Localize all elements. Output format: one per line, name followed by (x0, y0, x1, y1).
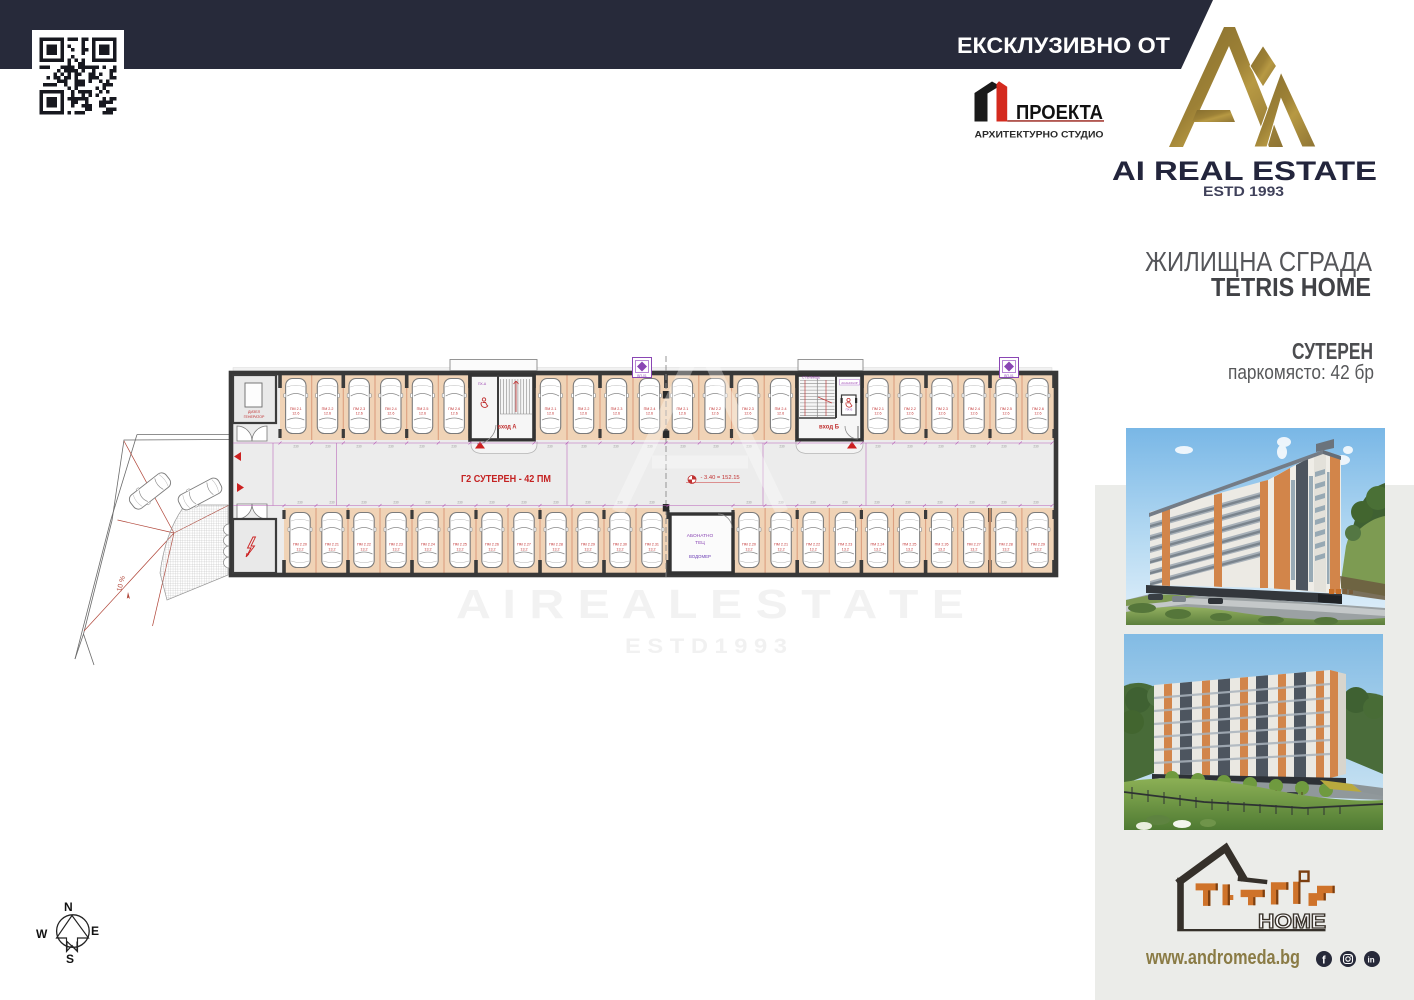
svg-text:ТЕЦ: ТЕЦ (695, 540, 705, 546)
svg-text:W: W (36, 927, 48, 941)
svg-text:230: 230 (1033, 445, 1039, 449)
svg-text:13.2: 13.2 (810, 547, 817, 551)
svg-text:13.2: 13.2 (745, 547, 752, 551)
svg-text:ПМ 2.26: ПМ 2.26 (935, 543, 949, 547)
svg-text:230: 230 (585, 500, 591, 504)
svg-text:230: 230 (425, 500, 431, 504)
svg-text:12.6: 12.6 (451, 412, 458, 416)
svg-text:ПМ 2.22: ПМ 2.22 (357, 543, 371, 547)
svg-text:230: 230 (489, 500, 495, 504)
svg-text:230: 230 (457, 500, 463, 504)
svg-text:13.2: 13.2 (552, 547, 559, 551)
svg-text:230: 230 (547, 445, 553, 449)
svg-text:ПМ 2.2: ПМ 2.2 (322, 407, 334, 411)
svg-text:ПМ 2.2: ПМ 2.2 (709, 407, 721, 411)
svg-text:230: 230 (581, 445, 587, 449)
svg-text:ПМ 2.6: ПМ 2.6 (448, 407, 460, 411)
svg-text:13.2: 13.2 (874, 547, 881, 551)
svg-text:13.2: 13.2 (938, 547, 945, 551)
svg-text:12.6: 12.6 (938, 412, 945, 416)
svg-text:230: 230 (451, 445, 457, 449)
svg-text:ВОДОМЕР: ВОДОМЕР (689, 554, 711, 559)
svg-text:230: 230 (361, 500, 367, 504)
svg-text:230: 230 (521, 500, 527, 504)
svg-text:вход Б: вход Б (819, 425, 840, 431)
svg-text:13.2: 13.2 (488, 547, 495, 551)
svg-text:13.2: 13.2 (392, 547, 399, 551)
svg-text:230: 230 (356, 445, 362, 449)
svg-text:ПМ 2.21: ПМ 2.21 (325, 543, 339, 547)
svg-text:ПМ 2.20: ПМ 2.20 (293, 543, 307, 547)
svg-text:S: S (66, 952, 74, 966)
svg-text:ПМ 2.29: ПМ 2.29 (581, 543, 595, 547)
svg-text:230: 230 (842, 500, 848, 504)
svg-text:13.2: 13.2 (648, 547, 655, 551)
svg-text:12.6: 12.6 (356, 412, 363, 416)
svg-text:ПМ 2.4: ПМ 2.4 (385, 407, 397, 411)
svg-text:230: 230 (297, 500, 303, 504)
svg-text:ПХ-А: ПХ-А (478, 382, 487, 386)
svg-text:13.2: 13.2 (328, 547, 335, 551)
svg-text:12.6: 12.6 (874, 412, 881, 416)
svg-text:ПМ 2.23: ПМ 2.23 (389, 543, 403, 547)
svg-text:13.2: 13.2 (906, 547, 913, 551)
svg-text:230: 230 (875, 445, 881, 449)
svg-text:230: 230 (680, 445, 686, 449)
svg-text:ВП-01: ВП-01 (1004, 374, 1014, 378)
svg-text:230: 230 (937, 500, 943, 504)
svg-text:ПМ 2.5: ПМ 2.5 (417, 407, 429, 411)
svg-text:13.2: 13.2 (424, 547, 431, 551)
svg-text:ПМ 2.26: ПМ 2.26 (485, 543, 499, 547)
svg-text:E S T D 1 9 9 3: E S T D 1 9 9 3 (625, 635, 787, 658)
svg-text:ПМ 2.20: ПМ 2.20 (742, 543, 756, 547)
svg-text:13.2: 13.2 (584, 547, 591, 551)
svg-text:230: 230 (969, 500, 975, 504)
svg-text:230: 230 (746, 500, 752, 504)
svg-text:230: 230 (713, 445, 719, 449)
svg-text:230: 230 (613, 445, 619, 449)
svg-text:ПМ 2.24: ПМ 2.24 (421, 543, 435, 547)
svg-text:12.6: 12.6 (970, 412, 977, 416)
svg-text:АБОНАТНО: АБОНАТНО (687, 533, 714, 539)
svg-text:13.2: 13.2 (970, 547, 977, 551)
svg-text:ПМ 2.31: ПМ 2.31 (645, 543, 659, 547)
svg-text:12.6: 12.6 (1034, 412, 1041, 416)
svg-text:ПМ 2.2: ПМ 2.2 (578, 407, 590, 411)
svg-text:ПМ 2.3: ПМ 2.3 (742, 407, 754, 411)
svg-text:ПМ 2.24: ПМ 2.24 (871, 543, 885, 547)
svg-text:230: 230 (293, 445, 299, 449)
svg-text:ПХ-Б: ПХ-Б (846, 408, 853, 412)
svg-text:ПМ 2.27: ПМ 2.27 (517, 543, 531, 547)
svg-text:ПМ 2.30: ПМ 2.30 (613, 543, 627, 547)
svg-text:АСАНСЬОР: АСАНСЬОР (841, 381, 858, 385)
svg-text:ПМ 2.3: ПМ 2.3 (611, 407, 623, 411)
svg-text:ПМ 2.1: ПМ 2.1 (872, 407, 884, 411)
svg-text:230: 230 (329, 500, 335, 504)
svg-text:СТЪЛБИЩЕ: СТЪЛБИЩЕ (802, 376, 820, 380)
svg-text:12.6: 12.6 (580, 412, 587, 416)
svg-text:230: 230 (810, 500, 816, 504)
svg-text:ПМ 2.25: ПМ 2.25 (453, 543, 467, 547)
svg-text:12.6: 12.6 (744, 412, 751, 416)
svg-text:230: 230 (393, 500, 399, 504)
svg-text:12.6: 12.6 (547, 412, 554, 416)
svg-text:10 %: 10 % (116, 575, 127, 592)
svg-text:13.2: 13.2 (616, 547, 623, 551)
svg-text:230: 230 (1033, 500, 1039, 504)
svg-text:ПМ 2.1: ПМ 2.1 (545, 407, 557, 411)
svg-text:13.2: 13.2 (296, 547, 303, 551)
svg-text:230: 230 (649, 500, 655, 504)
svg-text:ПМ 2.5: ПМ 2.5 (1000, 407, 1012, 411)
svg-text:230: 230 (905, 500, 911, 504)
svg-text:230: 230 (1001, 445, 1007, 449)
svg-text:ПМ 2.21: ПМ 2.21 (774, 543, 788, 547)
svg-text:ПМ 2.28: ПМ 2.28 (549, 543, 563, 547)
svg-text:13.2: 13.2 (842, 547, 849, 551)
svg-text:13.2: 13.2 (1002, 547, 1009, 551)
svg-text:12.6: 12.6 (712, 412, 719, 416)
svg-text:N: N (64, 900, 73, 914)
svg-text:ПМ 2.22: ПМ 2.22 (806, 543, 820, 547)
svg-text:ПМ 2.3: ПМ 2.3 (936, 407, 948, 411)
svg-text:ГЕНЕРАТОР: ГЕНЕРАТОР (244, 415, 265, 419)
svg-text:ДИЗЕЛ: ДИЗЕЛ (248, 410, 261, 414)
svg-text:- 3.40 = 152.15: - 3.40 = 152.15 (701, 475, 740, 481)
svg-text:13.2: 13.2 (360, 547, 367, 551)
svg-text:230: 230 (325, 445, 331, 449)
svg-text:230: 230 (553, 500, 559, 504)
svg-text:13.2: 13.2 (1034, 547, 1041, 551)
svg-text:ПМ 2.28: ПМ 2.28 (999, 543, 1013, 547)
svg-text:12.6: 12.6 (419, 412, 426, 416)
svg-text:12.6: 12.6 (324, 412, 331, 416)
svg-text:ПМ 2.2: ПМ 2.2 (904, 407, 916, 411)
svg-text:вход А: вход А (498, 425, 518, 431)
svg-text:ПМ 2.25: ПМ 2.25 (903, 543, 917, 547)
svg-text:230: 230 (1001, 500, 1007, 504)
svg-text:12.6: 12.6 (906, 412, 913, 416)
svg-text:ПМ 2.6: ПМ 2.6 (1032, 407, 1044, 411)
svg-text:13.2: 13.2 (778, 547, 785, 551)
svg-text:ПМ 2.1: ПМ 2.1 (290, 407, 302, 411)
svg-text:E: E (91, 924, 99, 938)
svg-text:230: 230 (419, 445, 425, 449)
svg-text:230: 230 (938, 445, 944, 449)
svg-text:230: 230 (388, 445, 394, 449)
svg-text:A I R E A L E S T A T E: A I R E A L E S T A T E (456, 581, 964, 627)
svg-text:12.6: 12.6 (292, 412, 299, 416)
svg-text:12.6: 12.6 (1002, 412, 1009, 416)
svg-text:230: 230 (874, 500, 880, 504)
svg-text:12.6: 12.6 (679, 412, 686, 416)
svg-text:230: 230 (970, 445, 976, 449)
svg-text:ПМ 2.3: ПМ 2.3 (353, 407, 365, 411)
svg-text:13.2: 13.2 (520, 547, 527, 551)
svg-text:ПМ 2.4: ПМ 2.4 (644, 407, 656, 411)
svg-text:Г2 СУТЕРЕН - 42 ПМ: Г2 СУТЕРЕН - 42 ПМ (461, 474, 551, 485)
svg-text:12.6: 12.6 (777, 412, 784, 416)
svg-text:ПМ 2.27: ПМ 2.27 (967, 543, 981, 547)
svg-text:ВП-01: ВП-01 (637, 374, 647, 378)
svg-text:12.6: 12.6 (613, 412, 620, 416)
svg-text:ПМ 2.4: ПМ 2.4 (775, 407, 787, 411)
svg-text:ПМ 2.4: ПМ 2.4 (968, 407, 980, 411)
svg-text:13.2: 13.2 (456, 547, 463, 551)
svg-text:230: 230 (907, 445, 913, 449)
svg-text:230: 230 (779, 445, 785, 449)
svg-text:ПМ 2.29: ПМ 2.29 (1031, 543, 1045, 547)
svg-text:ПМ 2.23: ПМ 2.23 (838, 543, 852, 547)
svg-text:ПМ 2.1: ПМ 2.1 (676, 407, 688, 411)
svg-text:12.6: 12.6 (646, 412, 653, 416)
svg-text:12.6: 12.6 (387, 412, 394, 416)
